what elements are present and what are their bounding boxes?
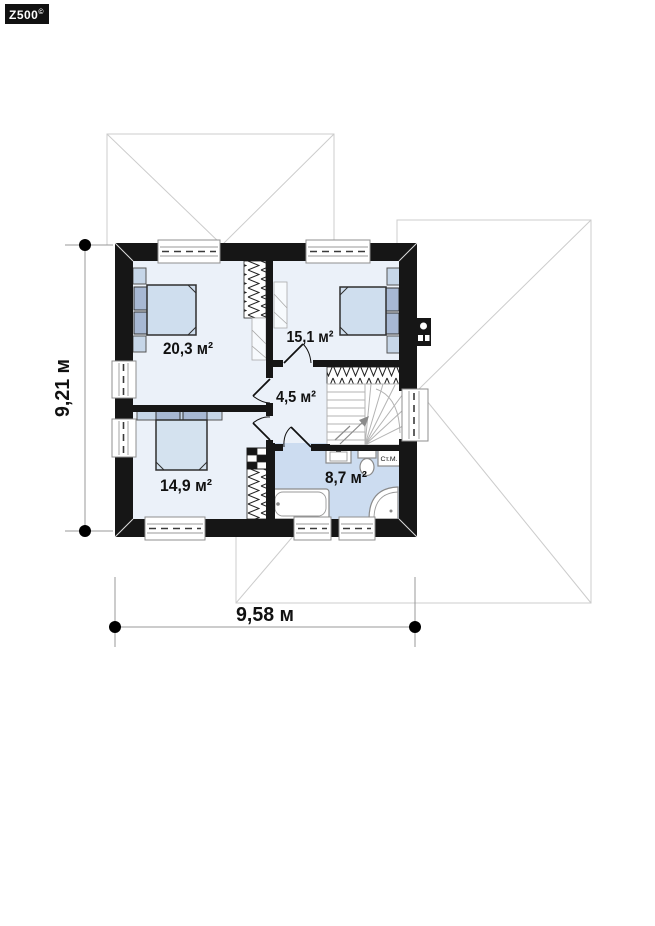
pillow: [134, 287, 147, 310]
dimension-width-label: 9,58 м: [236, 604, 294, 626]
window-top-bedroom-1: [158, 240, 220, 263]
area-label-bedroom-3: 14,9 м²: [160, 476, 212, 495]
dimension-width: 9,58 м: [109, 577, 421, 647]
window-left-bedroom-3: [112, 419, 136, 457]
bathtub: [271, 489, 329, 519]
nightstand: [387, 336, 400, 353]
pillow: [386, 288, 399, 311]
bed-body: [156, 420, 207, 470]
dimension-height: 9,21 м: [52, 239, 113, 537]
dimension-height-label: 9,21 м: [52, 359, 74, 417]
drawer-unit-bedroom-3: [247, 448, 267, 469]
nightstand: [387, 268, 400, 285]
window-left-bedroom-1: [112, 361, 136, 398]
window-bottom-bathroom-1: [294, 517, 331, 540]
window-bottom-bedroom-3: [145, 517, 205, 540]
area-label-bedroom-2: 15,1 м²: [287, 329, 334, 346]
chimney-vent: [416, 318, 431, 346]
wardrobe-bedroom-1-hatch: [244, 261, 266, 318]
area-label-bathroom: 8,7 м²: [325, 468, 367, 487]
closet-bedroom-3-hatch: [247, 469, 267, 519]
nightstand: [133, 268, 146, 284]
area-label-hallway: 4,5 м²: [276, 389, 316, 406]
closet-bedroom-2: [274, 282, 287, 328]
wardrobe-landing-hatch: [327, 367, 403, 384]
washing-machine: Ст.М.: [378, 450, 400, 466]
window-right-stairwell: [402, 389, 428, 441]
pillow: [386, 313, 399, 334]
closet-bedroom-1: [252, 318, 266, 360]
window-top-bedroom-2: [306, 240, 370, 263]
floor-plan-drawing: Ст.М.: [0, 0, 655, 926]
bed-body: [147, 285, 196, 335]
nightstand: [133, 336, 146, 352]
pillow: [134, 312, 147, 334]
floor-plan-page: Z500©: [0, 0, 655, 926]
washing-machine-label: Ст.М.: [381, 457, 398, 463]
window-bottom-bathroom-2: [339, 517, 375, 540]
bed-body: [340, 287, 386, 335]
area-label-bedroom-1: 20,3 м²: [163, 339, 213, 358]
